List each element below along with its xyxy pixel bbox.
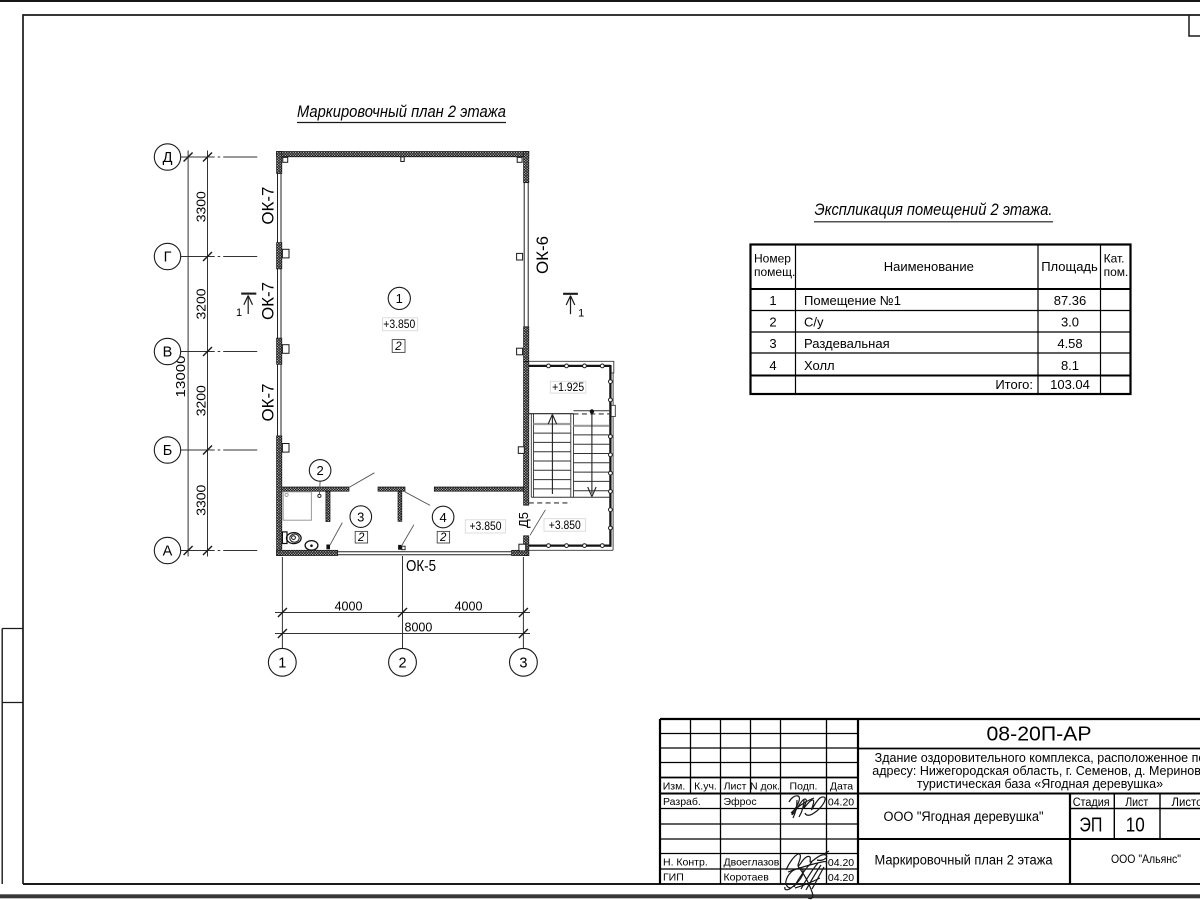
svg-text:2: 2	[357, 532, 365, 544]
svg-text:4: 4	[769, 358, 776, 373]
svg-text:Эфрос: Эфрос	[724, 796, 757, 808]
svg-text:Маркировочный план 2 этажа: Маркировочный план 2 этажа	[297, 102, 506, 121]
svg-text:2: 2	[398, 656, 406, 672]
svg-text:Коротаев: Коротаев	[724, 872, 770, 884]
svg-text:+3.850: +3.850	[383, 317, 415, 331]
svg-text:ОК-6: ОК-6	[533, 236, 552, 274]
svg-text:4.58: 4.58	[1057, 336, 1082, 351]
svg-text:Площадь: Площадь	[1041, 259, 1098, 274]
svg-text:2: 2	[316, 463, 323, 478]
svg-text:Д5: Д5	[516, 512, 531, 528]
svg-text:3300: 3300	[195, 191, 209, 222]
svg-text:4000: 4000	[455, 599, 483, 613]
svg-text:2: 2	[394, 341, 402, 353]
svg-text:3.0: 3.0	[1061, 314, 1079, 329]
svg-text:+1.925: +1.925	[552, 380, 584, 394]
svg-text:Разраб.: Разраб.	[663, 796, 701, 808]
svg-text:В: В	[163, 345, 173, 361]
svg-text:3: 3	[769, 336, 776, 351]
svg-text:Номер: Номер	[754, 252, 791, 266]
svg-text:К.уч.: К.уч.	[694, 780, 717, 792]
svg-text:1: 1	[236, 307, 242, 319]
svg-text:1: 1	[769, 293, 776, 308]
svg-text:Раздевальная: Раздевальная	[804, 336, 890, 351]
svg-text:адресу: Нижегородская область,: адресу: Нижегородская область, г. Семено…	[872, 764, 1200, 778]
svg-text:Стадия: Стадия	[1073, 797, 1110, 809]
svg-text:ОК-7: ОК-7	[258, 384, 277, 422]
svg-text:Холл: Холл	[804, 358, 835, 373]
svg-text:+3.850: +3.850	[470, 519, 502, 533]
svg-text:С/у: С/у	[804, 314, 824, 329]
svg-text:04.20: 04.20	[828, 797, 854, 809]
svg-text:3: 3	[357, 509, 364, 524]
svg-text:ГИП: ГИП	[663, 872, 684, 884]
svg-text:3200: 3200	[195, 385, 209, 416]
svg-text:помещ.: помещ.	[754, 265, 795, 279]
svg-text:103.04: 103.04	[1050, 377, 1090, 392]
svg-text:туристическая база «Ягодная де: туристическая база «Ягодная деревушка»	[917, 777, 1163, 791]
svg-text:Лист: Лист	[724, 780, 747, 792]
svg-text:N док.: N док.	[750, 780, 780, 792]
svg-text:Кат.: Кат.	[1104, 252, 1125, 266]
svg-text:ОК-7: ОК-7	[258, 187, 277, 225]
svg-text:Маркировочный план 2 этажа: Маркировочный план 2 этажа	[875, 853, 1053, 868]
svg-text:8000: 8000	[405, 620, 433, 634]
svg-text:1: 1	[278, 656, 286, 672]
svg-text:+3.850: +3.850	[549, 518, 581, 532]
svg-text:4: 4	[439, 510, 446, 525]
svg-text:Листов: Листов	[1172, 797, 1200, 809]
svg-text:4000: 4000	[335, 599, 363, 613]
svg-text:ЭП: ЭП	[1079, 814, 1102, 836]
svg-text:Подп.: Подп.	[790, 780, 818, 792]
svg-text:Г: Г	[164, 250, 172, 266]
svg-text:08-20П-АР: 08-20П-АР	[987, 724, 1092, 746]
svg-text:1: 1	[578, 307, 584, 319]
svg-text:10: 10	[1126, 814, 1145, 836]
svg-text:ООО "Альянс": ООО "Альянс"	[1111, 852, 1181, 866]
svg-text:3300: 3300	[195, 485, 209, 516]
svg-text:Помещение №1: Помещение №1	[804, 293, 901, 308]
svg-text:2: 2	[769, 314, 776, 329]
svg-text:04.20: 04.20	[828, 872, 854, 884]
svg-text:87.36: 87.36	[1054, 293, 1087, 308]
svg-text:ОК-5: ОК-5	[406, 558, 436, 575]
svg-text:Д: Д	[163, 150, 173, 166]
svg-text:Б: Б	[163, 443, 173, 459]
svg-text:8.1: 8.1	[1061, 358, 1079, 373]
svg-text:Наименование: Наименование	[884, 259, 974, 274]
svg-text:04.20: 04.20	[828, 857, 854, 869]
svg-text:Двоеглазов: Двоеглазов	[724, 857, 780, 869]
svg-text:Экспликация помещений 2 этажа.: Экспликация помещений 2 этажа.	[815, 200, 1053, 219]
svg-text:Дата: Дата	[830, 780, 853, 792]
svg-text:Здание оздоровительного компле: Здание оздоровительного комплекса, распо…	[875, 751, 1200, 765]
svg-text:ООО "Ягодная деревушка": ООО "Ягодная деревушка"	[884, 809, 1044, 824]
svg-text:3200: 3200	[195, 288, 209, 319]
svg-text:Изм.: Изм.	[663, 780, 686, 792]
svg-text:Н. Контр.: Н. Контр.	[663, 857, 708, 869]
svg-text:3: 3	[519, 656, 527, 672]
svg-text:ОК-7: ОК-7	[258, 282, 277, 320]
svg-text:1: 1	[396, 291, 403, 306]
svg-text:А: А	[163, 544, 173, 560]
svg-text:2: 2	[439, 532, 447, 544]
svg-text:пом.: пом.	[1104, 265, 1129, 279]
svg-text:Итого:: Итого:	[995, 377, 1033, 392]
svg-text:Лист: Лист	[1125, 797, 1149, 809]
